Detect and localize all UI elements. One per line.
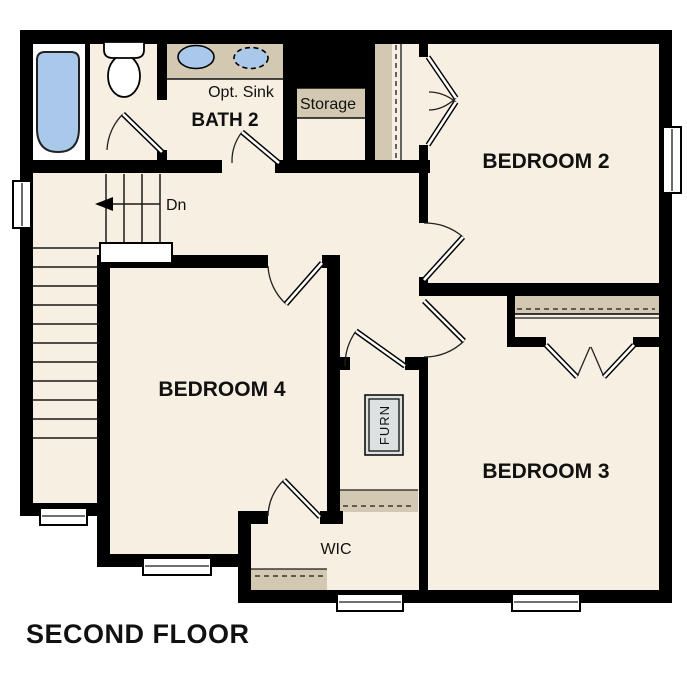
bathtub bbox=[37, 52, 79, 152]
stair-landing bbox=[100, 243, 172, 263]
optional-sink-basin bbox=[234, 48, 268, 69]
bath-hall-wall-left bbox=[20, 160, 222, 173]
bath-hall-wall-right bbox=[275, 160, 430, 173]
bedroom4-left-wall bbox=[97, 255, 110, 567]
toilet-tank bbox=[104, 42, 144, 58]
bedroom3-closet-shelf bbox=[513, 296, 659, 314]
opt-sink-label: Opt. Sink bbox=[208, 84, 275, 101]
second-floor-plan: FURN Opt. Sink BATH 2 Storage BEDROOM 2 … bbox=[0, 0, 687, 687]
storage-label: Storage bbox=[300, 96, 356, 113]
left-wall bbox=[20, 30, 33, 516]
sink-basin bbox=[178, 46, 214, 69]
hall-bedroom2-wall bbox=[419, 145, 428, 223]
bedroom4-right-wall bbox=[327, 255, 340, 524]
bedroom3-left-wall bbox=[419, 357, 428, 603]
bedroom4-label: BEDROOM 4 bbox=[158, 378, 286, 401]
storage-left-wall bbox=[283, 43, 297, 173]
wic-shelf bbox=[251, 569, 327, 592]
wic-label: WIC bbox=[320, 541, 351, 558]
bedroom2-label: BEDROOM 2 bbox=[482, 150, 609, 173]
furnace-wall-right bbox=[405, 357, 428, 370]
bedroom2-bottom-wall bbox=[419, 283, 672, 296]
storage-right-wall bbox=[365, 88, 375, 173]
toilet-bowl bbox=[108, 55, 140, 97]
right-wall bbox=[659, 30, 672, 603]
furnace-label: FURN bbox=[377, 405, 392, 445]
bedroom2-closet-shelf bbox=[375, 43, 392, 163]
furnace-closet-shelf bbox=[340, 490, 418, 512]
wic-top-wall-a bbox=[238, 511, 268, 524]
floor-plan-drawing: FURN Opt. Sink BATH 2 Storage BEDROOM 2 … bbox=[0, 0, 687, 687]
wic-top-wall-b bbox=[320, 511, 343, 524]
furnace-unit: FURN bbox=[365, 395, 403, 455]
wic-left-wall bbox=[238, 511, 251, 603]
toilet-partition bbox=[157, 43, 167, 100]
plan-title: SECOND FLOOR bbox=[26, 619, 250, 649]
tub-partition bbox=[85, 43, 90, 160]
bedroom3-label: BEDROOM 3 bbox=[482, 460, 609, 483]
stairs-down-label: Dn bbox=[166, 197, 186, 214]
bath2-label: BATH 2 bbox=[191, 110, 258, 131]
